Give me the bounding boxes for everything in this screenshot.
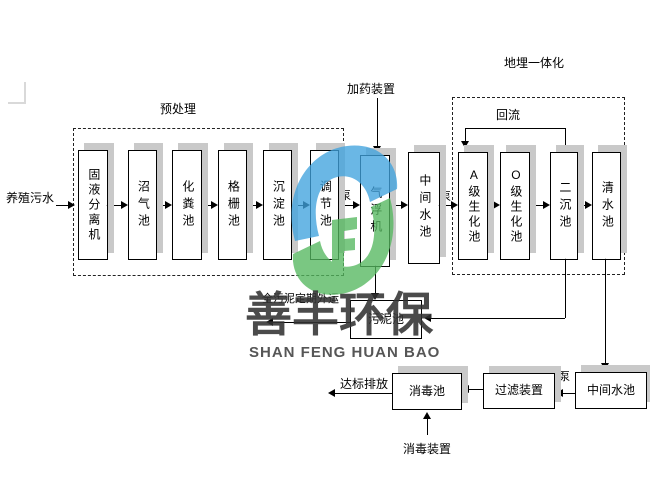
disinfect-device-line (427, 419, 428, 435)
sludge-out-arrowhead (266, 318, 273, 326)
reflux-arrowhead (461, 141, 469, 148)
box-sludge-pool: 污泥池 (350, 300, 422, 339)
box-clear-water-pool: 清水池 (592, 152, 621, 260)
flow-line (529, 205, 544, 206)
box-septic-tank: 化粪池 (172, 150, 202, 260)
box-a-bio-pool: A级生化池 (458, 152, 488, 260)
box-intermediate-pool-2: 中间水池 (575, 372, 647, 409)
box-o-bio-pool: O级生化池 (500, 152, 530, 260)
box-solid-liquid-separator: 固液分离机 (78, 150, 108, 260)
sludge-out-line (273, 322, 350, 323)
reflux-line (465, 128, 466, 141)
flow-arrowhead (256, 201, 263, 209)
flow-arrowhead (493, 201, 500, 209)
sludge-line (565, 258, 566, 318)
flow-arrowhead (543, 201, 550, 209)
sludge-arrowhead (371, 293, 379, 300)
flow-line (469, 389, 483, 390)
box-label: 化粪池 (180, 180, 194, 231)
box-label: O级生化池 (508, 168, 522, 245)
box-label: 气浮机 (368, 186, 382, 237)
box-disinfection-pool: 消毒池 (392, 373, 462, 410)
box-air-flotation: 气浮机 (360, 155, 390, 267)
box-label: 中间水池 (587, 384, 635, 398)
flow-arrowhead (353, 201, 360, 209)
sludge-arrowhead (424, 314, 431, 322)
box-biogas-pool: 沼气池 (128, 150, 157, 260)
dosing-device-label: 加药装置 (347, 80, 395, 97)
box-filter-device: 过滤装置 (483, 373, 555, 409)
flow-line (106, 205, 122, 206)
disinfect-device-label: 消毒装置 (403, 440, 451, 457)
sludge-out-label: 全污泥定期外运 (262, 290, 339, 306)
dosing-line (377, 98, 378, 146)
dosing-arrowhead (373, 146, 381, 153)
page-corner-mark (24, 82, 26, 104)
flow-arrowhead (121, 201, 128, 209)
box-grid-pool: 格栅池 (218, 150, 247, 260)
flow-arrowhead (211, 201, 218, 209)
box-label: 消毒池 (409, 385, 445, 399)
discharge-arrowhead (328, 389, 335, 397)
flow-line (438, 205, 452, 206)
flow-line (605, 258, 606, 363)
box-secondary-sedimentation: 二沉池 (550, 152, 578, 260)
box-label: A级生化池 (466, 168, 480, 245)
reflux-line (465, 128, 565, 129)
flow-arrowhead (165, 201, 172, 209)
flow-arrowhead (451, 201, 458, 209)
process-flow-diagram: 养殖污水 预处理 加药装置 地埋一体化 回流 泵 泵 泵 全污泥定期外运 达标排… (0, 0, 650, 500)
pump-label-1: 泵 (340, 187, 351, 203)
discharge-line (335, 393, 392, 394)
reflux-label: 回流 (496, 106, 520, 123)
flow-line (338, 205, 354, 206)
flow-arrowhead (601, 363, 609, 370)
reflux-line (565, 128, 566, 150)
pump-label-2: 泵 (440, 188, 451, 204)
flow-arrowhead (68, 201, 75, 209)
flow-arrowhead (556, 389, 563, 397)
discharge-label: 达标排放 (340, 375, 388, 392)
box-label: 沉淀池 (271, 180, 285, 231)
box-label: 二沉池 (557, 181, 571, 232)
sludge-line (375, 265, 376, 293)
buried-integration-label: 地埋一体化 (504, 54, 564, 71)
box-label: 沼气池 (136, 180, 150, 231)
influent-label: 养殖污水 (6, 189, 54, 206)
disinfect-device-arrowhead (423, 412, 431, 419)
flow-arrowhead (585, 201, 592, 209)
box-sedimentation-pool: 沉淀池 (263, 150, 292, 260)
box-intermediate-pool-1: 中间水池 (408, 152, 440, 264)
flow-arrowhead (303, 201, 310, 209)
pump-label-3: 泵 (559, 368, 570, 384)
box-regulating-pool: 调节池 (310, 150, 339, 260)
box-label: 调节池 (318, 180, 332, 231)
box-label: 固液分离机 (86, 168, 100, 243)
box-label: 污泥池 (368, 313, 404, 327)
flow-line (563, 393, 575, 394)
sludge-line (431, 318, 565, 319)
box-label: 过滤装置 (495, 384, 543, 398)
box-label: 格栅池 (226, 180, 240, 231)
watermark-en-text: SHAN FENG HUAN BAO (249, 344, 440, 361)
pretreatment-label: 预处理 (160, 100, 196, 117)
box-label: 清水池 (600, 181, 614, 232)
page-corner-mark (8, 102, 26, 104)
box-label: 中间水池 (417, 174, 431, 242)
flow-arrowhead (401, 201, 408, 209)
flow-arrowhead (462, 385, 469, 393)
